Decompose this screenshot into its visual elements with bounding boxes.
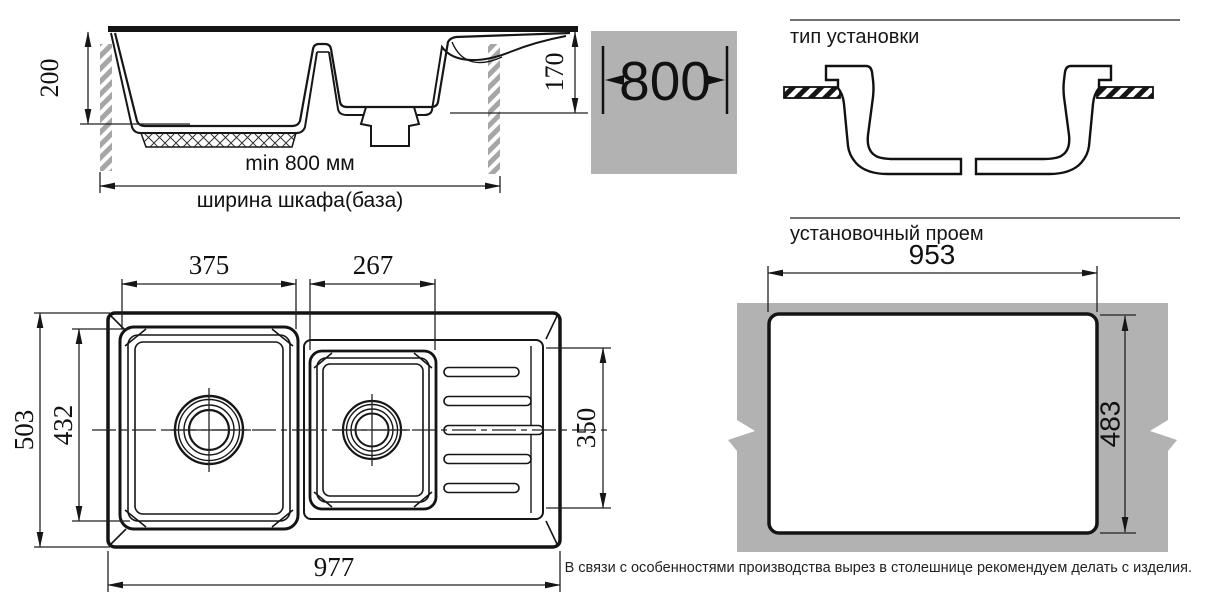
installation-type-title: тип установки	[790, 26, 919, 48]
min-width-label: min 800 мм	[245, 152, 354, 175]
dim-170-label: 170	[540, 53, 569, 92]
cutout-section: установочный проем 953 483 В связи с осо…	[565, 218, 1192, 576]
dim-267-label: 267	[353, 250, 394, 280]
dim-170: 170	[450, 32, 588, 113]
countertop-left-bar	[784, 87, 840, 98]
dim-503-label: 503	[9, 410, 39, 451]
dim-200-label: 200	[35, 59, 64, 98]
dim-432-label: 432	[48, 405, 78, 446]
dim-483-label: 483	[1094, 401, 1125, 448]
bowl1-base-hatch	[141, 133, 296, 147]
side-view: 200 170 min 800 мм ширина шкафа(база)	[35, 26, 588, 212]
sink-rim	[108, 26, 578, 32]
dim-977: 977	[108, 551, 560, 592]
bowl1-outer-wall	[111, 33, 317, 133]
installation-type-section: тип установки	[784, 20, 1180, 174]
sink-spec-sheet: 200 170 min 800 мм ширина шкафа(база) 80…	[0, 0, 1215, 606]
top-view: 375 267 503 432 350	[9, 250, 611, 592]
edge-profile-right	[976, 66, 1111, 174]
dim-375-label: 375	[189, 250, 230, 280]
countertop-right-bar	[1097, 87, 1153, 98]
production-note: В связи с особенностями производства выр…	[565, 560, 1192, 576]
dim-953: 953	[768, 239, 1097, 312]
cabinet-left-panel	[100, 44, 112, 171]
badge-width-value: 800	[619, 50, 711, 112]
drain-stub	[361, 107, 419, 146]
cabinet-width-label: ширина шкафа(база)	[197, 189, 404, 212]
dim-200: 200	[35, 32, 190, 124]
dim-min-800: min 800 мм ширина шкафа(база)	[100, 152, 500, 212]
cutout-rect	[769, 314, 1097, 533]
dim-953-label: 953	[909, 239, 956, 270]
interior-profile	[115, 33, 570, 126]
dim-977-label: 977	[314, 552, 355, 582]
width-badge: 800	[591, 31, 737, 174]
edge-profile-left	[826, 66, 961, 174]
dim-350-label: 350	[571, 408, 601, 449]
cabinet-right-panel	[488, 44, 500, 174]
technical-drawing: 200 170 min 800 мм ширина шкафа(база) 80…	[0, 0, 1215, 606]
